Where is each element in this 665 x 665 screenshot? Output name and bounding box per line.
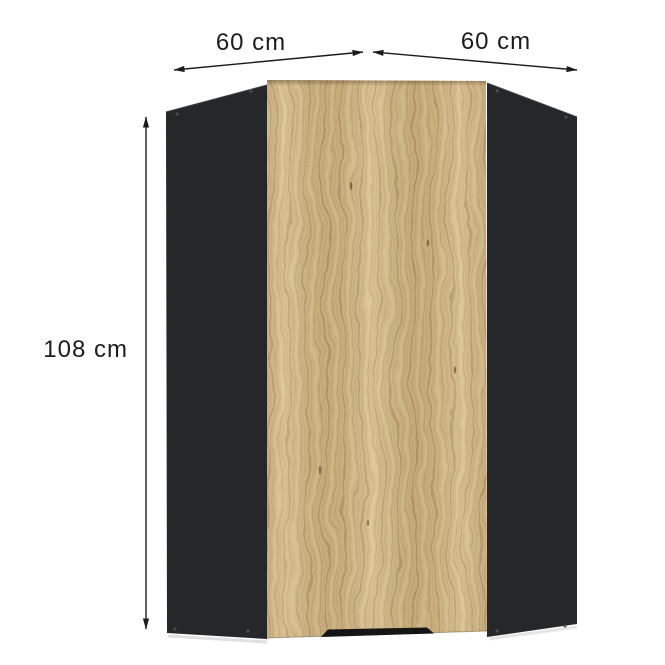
dimension-label-height: 108 cm <box>43 336 128 363</box>
left-side-panel <box>166 85 267 639</box>
door-wood-tonal-overlay <box>255 65 500 650</box>
door-front <box>255 65 500 650</box>
right-side-panel <box>487 83 577 637</box>
product-dimension-image: 60 cm 60 cm 108 cm <box>0 0 665 665</box>
corner-cabinet-illustration <box>166 65 577 650</box>
door-top-edge-shade <box>255 79 500 86</box>
dimension-label-width-right: 60 cm <box>461 28 531 55</box>
dimension-label-width-left: 60 cm <box>216 29 286 56</box>
